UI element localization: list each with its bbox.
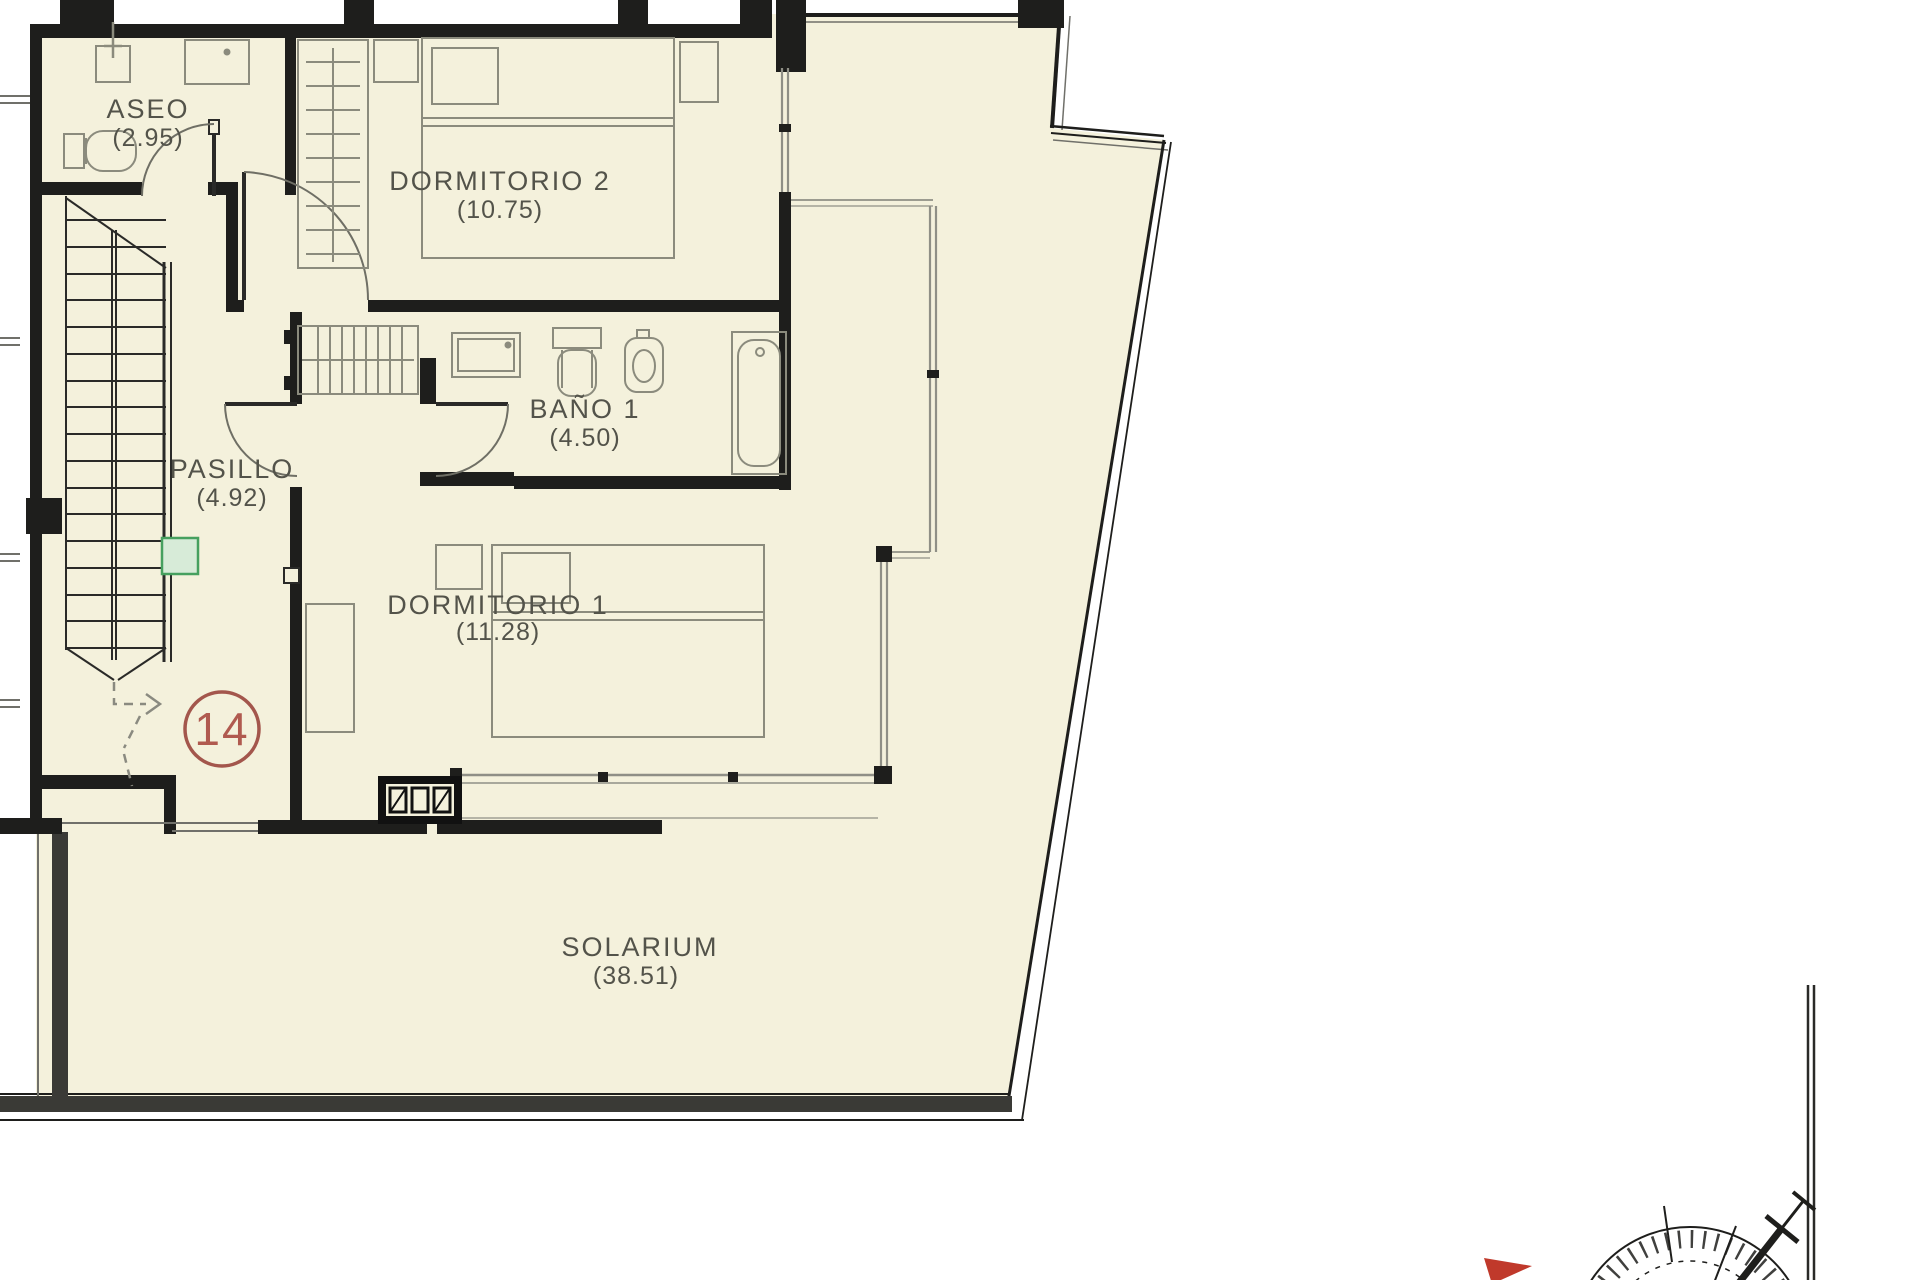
- unit-number: 14: [194, 703, 249, 755]
- area-label-aseo: (2.95): [112, 124, 183, 152]
- area-label-dormitorio1: (11.28): [456, 618, 540, 646]
- room-label-pasillo: PASILLO: [170, 454, 295, 484]
- wall-column: [26, 498, 62, 534]
- top-wall: [30, 24, 772, 38]
- page-border-line: [1808, 985, 1814, 1280]
- compass-rose-icon: [1484, 1192, 1815, 1280]
- stair-level-marker: [162, 538, 198, 574]
- electrical-box: [284, 568, 299, 583]
- area-label-pasillo: (4.92): [196, 484, 267, 512]
- room-label-solarium: SOLARIUM: [561, 932, 718, 962]
- left-wall: [30, 24, 42, 832]
- area-label-dormitorio2: (10.75): [457, 196, 543, 224]
- vent-grille-icon: [378, 776, 462, 824]
- north-arrow-icon: [1484, 1258, 1532, 1280]
- floor-plan-page: ASEO (2.95) DORMITORIO 2 (10.75) BAÑO 1 …: [0, 0, 1920, 1280]
- area-label-bano1: (4.50): [549, 424, 620, 452]
- room-label-dormitorio1: DORMITORIO 1: [387, 590, 609, 620]
- neighbor-wall-stubs: [0, 96, 30, 707]
- area-label-solarium: (38.51): [593, 962, 679, 990]
- room-label-bano1: BAÑO 1: [529, 393, 640, 424]
- room-label-dormitorio2: DORMITORIO 2: [389, 166, 611, 196]
- room-label-aseo: ASEO: [106, 94, 189, 124]
- floor-plan-drawing: ASEO (2.95) DORMITORIO 2 (10.75) BAÑO 1 …: [0, 0, 1920, 1280]
- unit-number-circle: 14: [185, 692, 259, 766]
